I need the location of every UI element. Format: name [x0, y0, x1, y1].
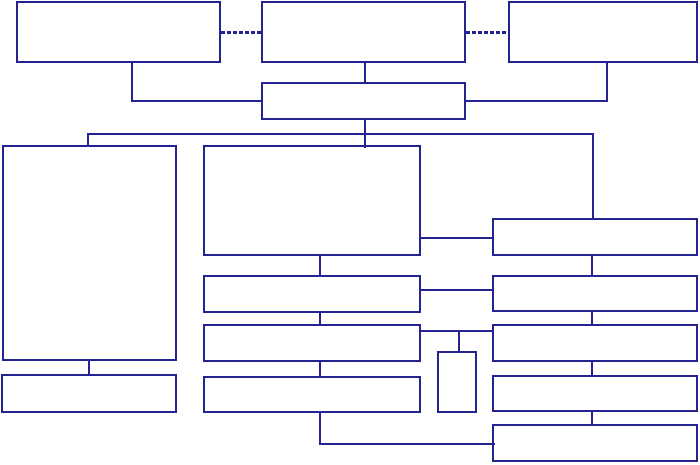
connector-topmiddle-down [364, 61, 366, 84]
connector-right-1-2 [591, 254, 593, 277]
drop-to-small-box [458, 330, 460, 353]
connector-middle4-down [319, 411, 321, 445]
dashed-link-top-right [466, 31, 508, 34]
connector-middle-1-2 [319, 254, 321, 277]
box-right-4 [492, 375, 698, 412]
box-right-2 [492, 275, 698, 312]
connector-middle-3-4 [319, 360, 321, 378]
connector-bottom-across [319, 443, 495, 445]
connector-topleft-across [131, 100, 263, 102]
box-top-middle [261, 1, 466, 63]
box-middle-4 [203, 376, 421, 413]
box-top-right [508, 1, 698, 63]
box-top-left [16, 1, 221, 63]
box-right-5 [492, 424, 698, 462]
box-level2-center [261, 82, 466, 120]
box-right-1 [492, 218, 698, 256]
box-middle-large [203, 145, 421, 256]
box-middle-3 [203, 324, 421, 362]
link-middle-right-3 [419, 330, 494, 332]
box-left-bottom [1, 374, 177, 413]
connector-right-4-5 [591, 410, 593, 426]
link-middle-right-2 [419, 289, 494, 291]
drop-to-right-1 [592, 133, 594, 220]
connector-right-3-4 [591, 360, 593, 377]
dashed-link-top-left [221, 31, 261, 34]
drop-to-left-large [87, 133, 89, 147]
connector-left-large-down [88, 359, 90, 376]
box-left-large [2, 145, 177, 361]
box-small-center [437, 351, 477, 413]
connector-topright-across [464, 100, 608, 102]
link-middle-right-1 [419, 237, 494, 239]
connector-right-2-3 [591, 310, 593, 326]
connector-topleft-down [131, 61, 133, 102]
distribution-line [87, 133, 594, 135]
connector-middle-2-3 [319, 311, 321, 326]
flowchart-canvas [0, 0, 700, 465]
box-middle-2 [203, 275, 421, 313]
box-right-3 [492, 324, 698, 362]
connector-topright-down [606, 61, 608, 102]
